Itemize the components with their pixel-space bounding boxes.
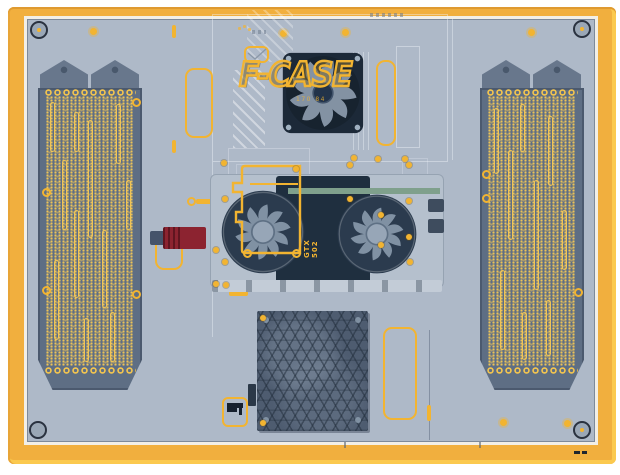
- fine-print-marks: [370, 13, 404, 17]
- highlight-dot: [293, 166, 299, 172]
- gpu-pcb-bottom: [212, 280, 442, 292]
- grille-trace: [562, 210, 567, 270]
- wire-line: [452, 18, 453, 160]
- wire-check-icon: [246, 48, 268, 61]
- highlight-dot: [406, 162, 412, 168]
- highlight-dot: [221, 160, 227, 166]
- grille-ring-row: [486, 366, 578, 375]
- highlight-dot: [347, 196, 353, 202]
- grille-trace: [546, 300, 551, 356]
- case-logo-subtext: 170 84: [296, 96, 326, 103]
- frame-mark: [582, 451, 587, 454]
- screw-dot-icon: [90, 28, 97, 35]
- grille-trace: [54, 260, 59, 340]
- grille-trace: [74, 112, 79, 152]
- left-grille-panel[interactable]: [38, 60, 142, 390]
- screw-dot-icon: [528, 29, 535, 36]
- highlight-dot: [347, 162, 353, 168]
- grille-trace: [62, 160, 67, 230]
- case-side-elevation: F-CASE 170 84: [0, 0, 620, 475]
- tiny-mark: [243, 25, 246, 28]
- highlight-dot: [378, 242, 384, 248]
- grille-trace: [74, 210, 79, 298]
- highlight-dot: [222, 259, 228, 265]
- io-cutout-outline[interactable]: [244, 46, 269, 63]
- highlight-dot: [351, 155, 357, 161]
- red-connector[interactable]: [163, 227, 206, 249]
- right-grille-panel[interactable]: [480, 60, 584, 390]
- tick-mark: [427, 405, 431, 421]
- frame-tick: [479, 442, 481, 448]
- vent-cutout-outline[interactable]: [383, 327, 417, 420]
- gpu-bracket-tab: [428, 219, 444, 233]
- ring-marker-icon: [292, 249, 301, 258]
- ram-slot-line: [368, 52, 369, 150]
- grille-trace: [88, 120, 93, 238]
- gpu-model-label: GTX 502: [303, 220, 319, 258]
- psu-screw-icon: [355, 317, 361, 323]
- mount-hook-icon: [132, 290, 141, 299]
- ring-marker-icon: [243, 249, 252, 258]
- psu-cable: [248, 384, 256, 406]
- highlight-dot: [402, 156, 408, 162]
- tick-mark: [172, 140, 176, 153]
- grille-trace: [522, 312, 527, 360]
- screw-dot-icon: [500, 419, 507, 426]
- corner-screw-icon: [573, 20, 591, 38]
- grille-trace: [548, 116, 553, 186]
- corner-screw-icon: [29, 421, 47, 439]
- power-plug-icon: [227, 408, 237, 412]
- mount-hook-icon: [132, 98, 141, 107]
- gpu-fan-right: [336, 193, 418, 275]
- highlight-dot: [378, 212, 384, 218]
- grille-ring-row: [44, 366, 136, 375]
- corner-screw-icon: [573, 421, 591, 439]
- highlight-dot: [406, 234, 412, 240]
- ring-marker-icon: [187, 197, 196, 206]
- grille-trace: [110, 312, 115, 362]
- tiny-mark: [238, 27, 241, 30]
- power-socket-cutout[interactable]: [222, 397, 248, 427]
- grille-trace: [500, 270, 505, 350]
- highlight-dot: [223, 282, 229, 288]
- highlight-dot: [260, 315, 266, 321]
- mount-hook-icon: [42, 188, 51, 197]
- psu-unit[interactable]: [257, 311, 368, 431]
- grille-trace: [84, 318, 89, 362]
- gpu-bracket-tab: [428, 199, 444, 212]
- fine-print-marks: [252, 30, 266, 34]
- mount-hook-icon: [482, 194, 491, 203]
- grille-trace: [126, 180, 131, 230]
- grille-trace: [494, 108, 499, 174]
- highlight-dot: [213, 281, 219, 287]
- vent-cutout-outline[interactable]: [376, 60, 396, 146]
- tick-mark: [172, 25, 176, 38]
- tiny-mark: [248, 28, 251, 31]
- highlight-dot: [222, 196, 228, 202]
- highlight-dot: [406, 198, 412, 204]
- frame-mark: [574, 451, 580, 454]
- corner-screw-icon: [30, 21, 48, 39]
- mount-hook-icon: [574, 288, 583, 297]
- psu-screw-icon: [355, 417, 361, 423]
- highlight-dot: [407, 259, 413, 265]
- vent-cutout-outline[interactable]: [185, 68, 213, 138]
- power-plug-icon: [239, 408, 242, 415]
- highlight-dot: [260, 420, 266, 426]
- grille-trace: [102, 230, 107, 308]
- grille-trace: [116, 104, 121, 164]
- highlight-dot: [375, 156, 381, 162]
- frame-tick: [344, 442, 346, 448]
- grille-trace: [534, 180, 539, 290]
- bracket-highlight-outline[interactable]: [230, 160, 306, 260]
- grille-trace: [50, 102, 55, 152]
- screw-dot-icon: [564, 420, 571, 427]
- wire-line: [429, 330, 430, 440]
- grille-trace: [520, 104, 525, 152]
- io-wireframe: [396, 46, 420, 148]
- grille-trace: [508, 150, 513, 240]
- mount-hook-icon: [482, 170, 491, 179]
- highlight-dot: [213, 247, 219, 253]
- mount-hook-icon: [42, 286, 51, 295]
